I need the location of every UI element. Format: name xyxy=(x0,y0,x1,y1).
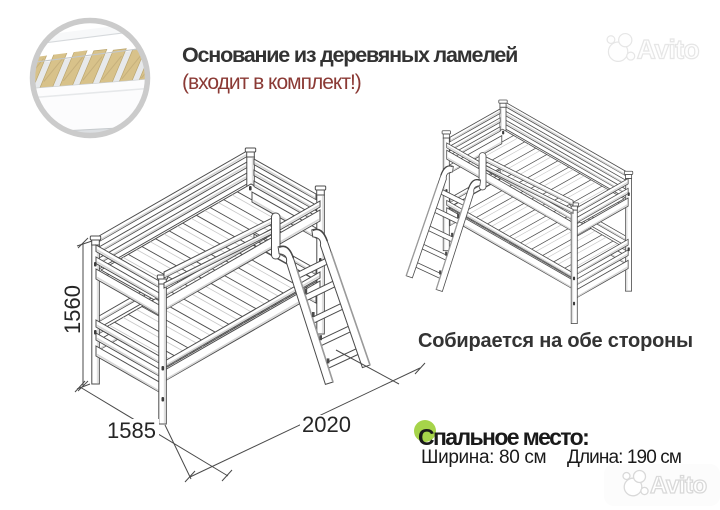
svg-text:Avito: Avito xyxy=(650,472,707,499)
svg-text:1585: 1585 xyxy=(107,418,156,443)
svg-text:Основание из деревяных ламелей: Основание из деревяных ламелей xyxy=(182,43,517,67)
svg-text:(входит в комплект!): (входит в комплект!) xyxy=(182,71,361,94)
svg-text:1560: 1560 xyxy=(60,285,85,334)
svg-text:Ширина: 80 см: Ширина: 80 см xyxy=(421,447,546,468)
svg-text:Avito: Avito xyxy=(637,34,700,64)
svg-text:Собирается на обе стороны: Собирается на обе стороны xyxy=(418,330,693,352)
svg-text:2020: 2020 xyxy=(302,412,351,437)
